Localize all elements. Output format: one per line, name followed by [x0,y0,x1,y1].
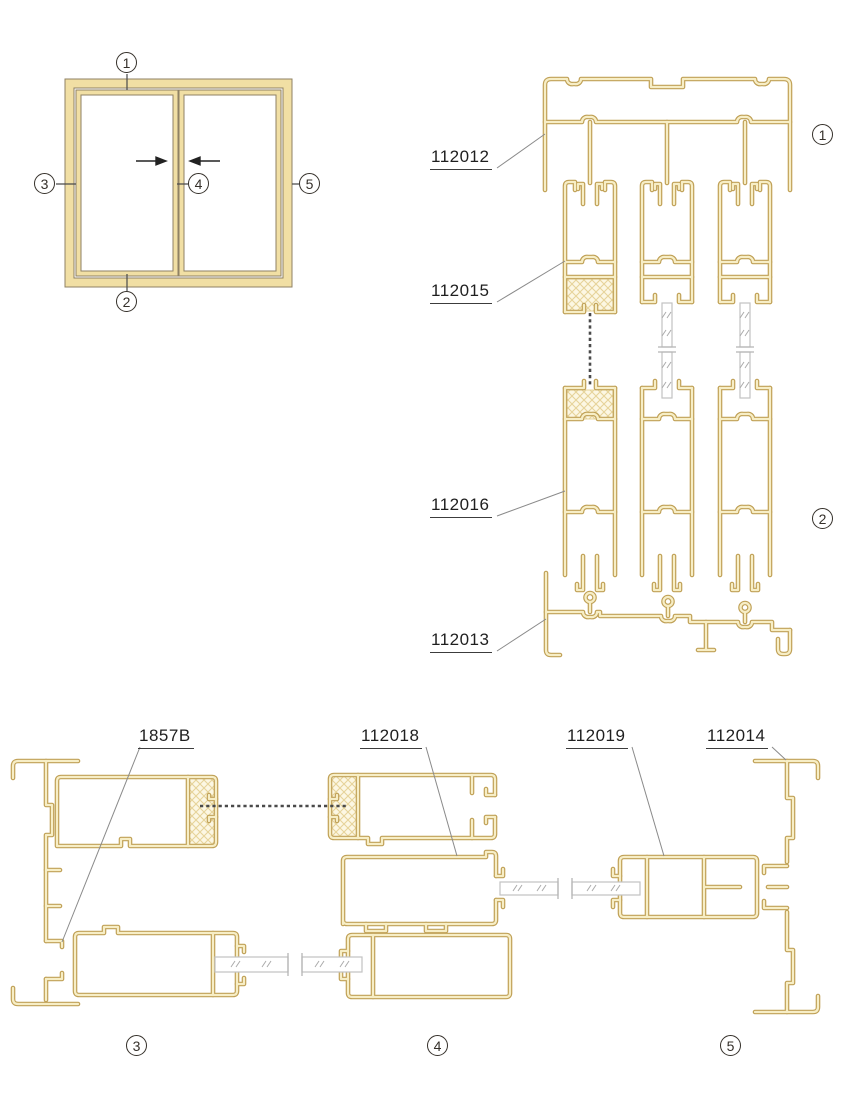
section-marker-3: 3 [126,1035,147,1056]
wool-pile-blocks [189,279,613,845]
elevation-marker-4: 4 [188,173,209,194]
profile-system-drawing: 112012 112015 112016 112013 1857B 112018… [0,0,850,1096]
elevation-left-sash [76,90,178,276]
section-marker-5: 5 [720,1035,741,1056]
section-marker-1: 1 [812,124,833,145]
label-bracket: 1857B [138,726,194,749]
label-side-jamb: 112014 [706,726,768,749]
leader-lines [62,134,786,942]
label-head-frame: 112012 [430,147,492,170]
label-bottom-sash: 112016 [430,495,492,518]
label-side-sash: 112019 [566,726,628,749]
aluminum-cores [13,79,818,1012]
section-marker-2: 2 [812,508,833,529]
label-interlock-sash: 112018 [360,726,422,749]
section-marker-4: 4 [427,1035,448,1056]
elevation-marker-3: 3 [34,173,55,194]
elevation-marker-5: 5 [299,173,320,194]
elevation-marker-2: 2 [116,291,137,312]
label-top-sash: 112015 [430,281,492,304]
section-linework [0,0,850,1096]
label-sill-frame: 112013 [430,630,492,653]
aluminum-edges [13,79,818,1012]
window-elevation [56,74,299,291]
elevation-marker-1: 1 [116,52,137,73]
